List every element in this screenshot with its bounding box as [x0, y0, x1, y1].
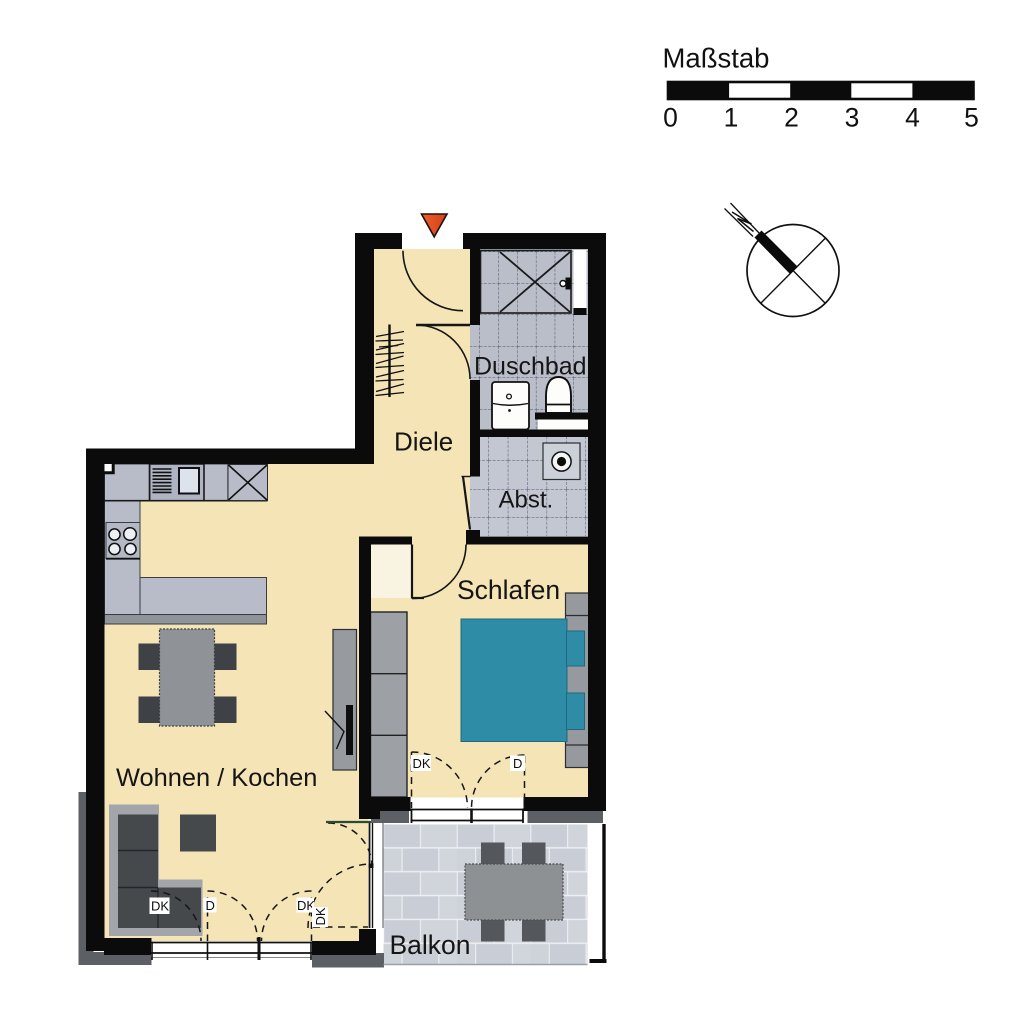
- svg-text:D: D: [513, 756, 522, 771]
- svg-text:0: 0: [663, 103, 678, 133]
- svg-text:Maßstab: Maßstab: [663, 43, 770, 74]
- svg-text:4: 4: [905, 103, 920, 133]
- svg-text:Schlafen: Schlafen: [457, 575, 560, 605]
- svg-text:Duschbad: Duschbad: [474, 353, 587, 381]
- svg-text:2: 2: [784, 103, 799, 133]
- svg-text:Balkon: Balkon: [390, 930, 471, 960]
- svg-text:DK: DK: [313, 907, 328, 925]
- svg-text:Wohnen / Kochen: Wohnen / Kochen: [116, 764, 317, 792]
- svg-text:D: D: [206, 898, 215, 913]
- svg-text:1: 1: [724, 103, 739, 133]
- svg-text:3: 3: [845, 103, 860, 133]
- svg-text:5: 5: [964, 103, 979, 133]
- svg-text:DK: DK: [413, 756, 431, 771]
- svg-text:Abst.: Abst.: [499, 487, 554, 514]
- svg-text:Diele: Diele: [394, 427, 453, 457]
- svg-text:DK: DK: [151, 899, 169, 914]
